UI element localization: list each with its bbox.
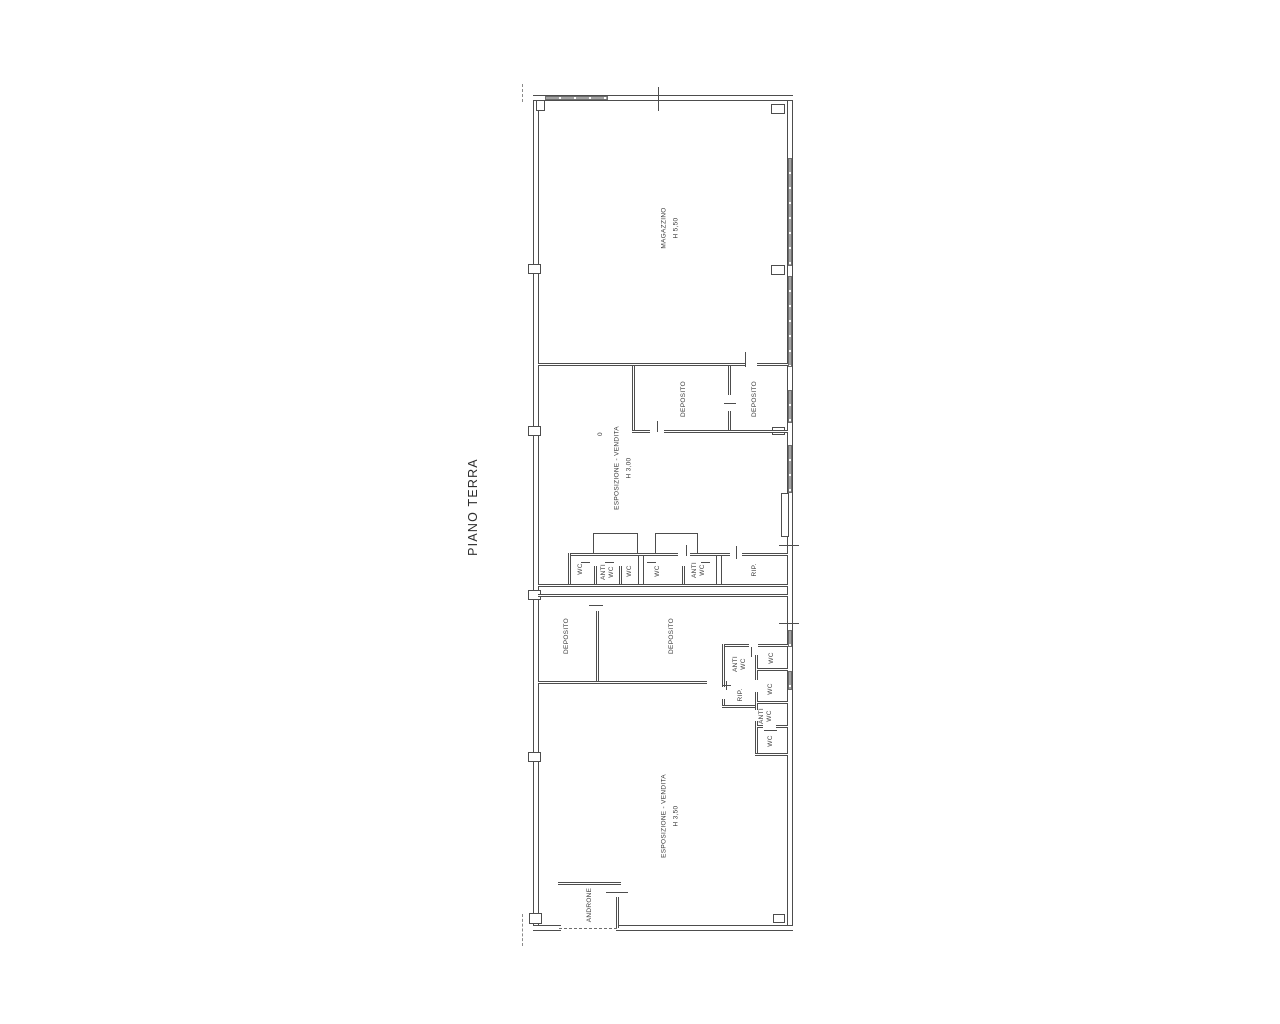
zero-mark: 0 [595, 432, 607, 436]
wall [722, 644, 749, 647]
wall-unit-separation [538, 594, 788, 597]
wall [619, 566, 622, 585]
pillar [771, 265, 785, 275]
pillar [536, 100, 545, 111]
wall-joint-tick [779, 545, 799, 546]
room-label-wc: WC [766, 652, 778, 663]
room-name: ANTI [758, 708, 766, 724]
pillar [528, 752, 541, 762]
wall-joint-tick [658, 87, 659, 111]
duct-shaft [593, 533, 638, 554]
wall [632, 430, 650, 433]
room-label-androne: ANDRONE [584, 888, 596, 923]
wall [568, 553, 571, 587]
wall [616, 897, 619, 928]
room-label-rip: RIP. [735, 688, 747, 701]
room-name: ANTI [600, 564, 608, 580]
room-name: WC [740, 656, 748, 672]
wall [757, 725, 763, 728]
door-leaf [751, 647, 752, 657]
wall [632, 366, 635, 431]
door-leaf [745, 352, 746, 367]
room-label-deposito: DEPOSITO [678, 381, 690, 417]
wall [758, 644, 788, 647]
wall [776, 725, 788, 728]
door-leaf [657, 421, 658, 432]
room-label-deposito: DEPOSITO [561, 618, 573, 654]
window-strip [788, 445, 792, 493]
wall [742, 553, 788, 556]
wall [690, 553, 730, 556]
room-label-deposito: DEPOSITO [749, 381, 761, 417]
room-name: WC [608, 564, 616, 580]
room-label-wc: WC [765, 683, 777, 694]
door-leaf [606, 892, 628, 893]
floor-plan: PIANO TERRA MAGAZZINO H 5,50 ESPOSIZIONE… [0, 0, 1280, 1024]
room-height: H 3,50 [671, 774, 683, 858]
door-leaf [764, 730, 777, 731]
room-label-anti-wc: ANTI WC [758, 708, 774, 724]
room-name: ESPOSIZIONE - VENDITA [659, 774, 671, 858]
window-strip [788, 390, 792, 423]
wall-outer-bottom [533, 925, 561, 931]
wall [728, 366, 731, 395]
room-height: H 3,00 [624, 426, 636, 510]
wall [558, 882, 621, 885]
wall [722, 705, 757, 708]
wall [664, 430, 788, 433]
pillar [528, 264, 541, 274]
window-strip [545, 96, 608, 100]
wall [728, 411, 731, 431]
section-line-mark [522, 84, 523, 102]
room-height: H 5,50 [671, 207, 683, 248]
door-leaf-panel [781, 493, 789, 537]
room-label-wc: WC [765, 735, 777, 746]
room-name: ANTI [732, 656, 740, 672]
door-leaf [605, 562, 614, 563]
wall [755, 753, 788, 756]
window-strip [788, 671, 792, 690]
wall-outer-left [533, 95, 539, 931]
room-label-esposizione-mid: ESPOSIZIONE - VENDITA H 3,00 [612, 426, 637, 510]
duct-shaft [655, 533, 698, 554]
wall-joint-tick [779, 623, 799, 624]
door-leaf [736, 546, 737, 559]
room-label-wc: WC [575, 563, 587, 574]
door-leaf [724, 403, 736, 404]
page-title: PIANO TERRA [462, 458, 486, 556]
pillar [528, 426, 541, 436]
window-strip [788, 158, 792, 266]
door-leaf [647, 562, 656, 563]
room-label-esposizione-low: ESPOSIZIONE - VENDITA H 3,50 [659, 774, 684, 858]
wall [596, 611, 599, 683]
door-leaf [686, 545, 687, 556]
wall [757, 363, 788, 366]
room-name: WC [699, 562, 707, 578]
wall [538, 681, 707, 684]
room-label-rip: RIP. [749, 563, 761, 576]
section-line-mark [522, 914, 523, 946]
room-label-anti-wc: ANTI WC [600, 564, 616, 580]
room-name: ANTI [691, 562, 699, 578]
pillar [529, 913, 542, 924]
room-name: ESPOSIZIONE - VENDITA [612, 426, 624, 510]
door-leaf [589, 605, 603, 606]
wall [538, 363, 745, 366]
room-name: MAGAZZINO [659, 207, 671, 248]
room-label-deposito: DEPOSITO [666, 618, 678, 654]
door-swing-cross [726, 681, 727, 690]
wall-outer-bottom [616, 925, 793, 931]
wall [757, 701, 788, 704]
window-strip [788, 630, 792, 647]
wall-unit-separation [538, 584, 788, 587]
room-label-wc: WC [624, 565, 636, 576]
room-name: WC [766, 708, 774, 724]
wall [594, 566, 597, 585]
pillar [773, 914, 785, 923]
wall [757, 668, 788, 671]
room-label-anti-wc: ANTI WC [732, 656, 748, 672]
window-strip [788, 276, 792, 367]
wall [722, 644, 725, 687]
entrance-threshold-dashed [559, 928, 617, 929]
room-label-magazzino: MAGAZZINO H 5,50 [659, 207, 684, 248]
pillar [771, 104, 785, 114]
room-label-wc: WC [652, 565, 664, 576]
wall [638, 556, 644, 585]
wall [716, 556, 722, 585]
wall [682, 566, 685, 585]
room-label-anti-wc: ANTI WC [691, 562, 707, 578]
wall [568, 553, 678, 556]
